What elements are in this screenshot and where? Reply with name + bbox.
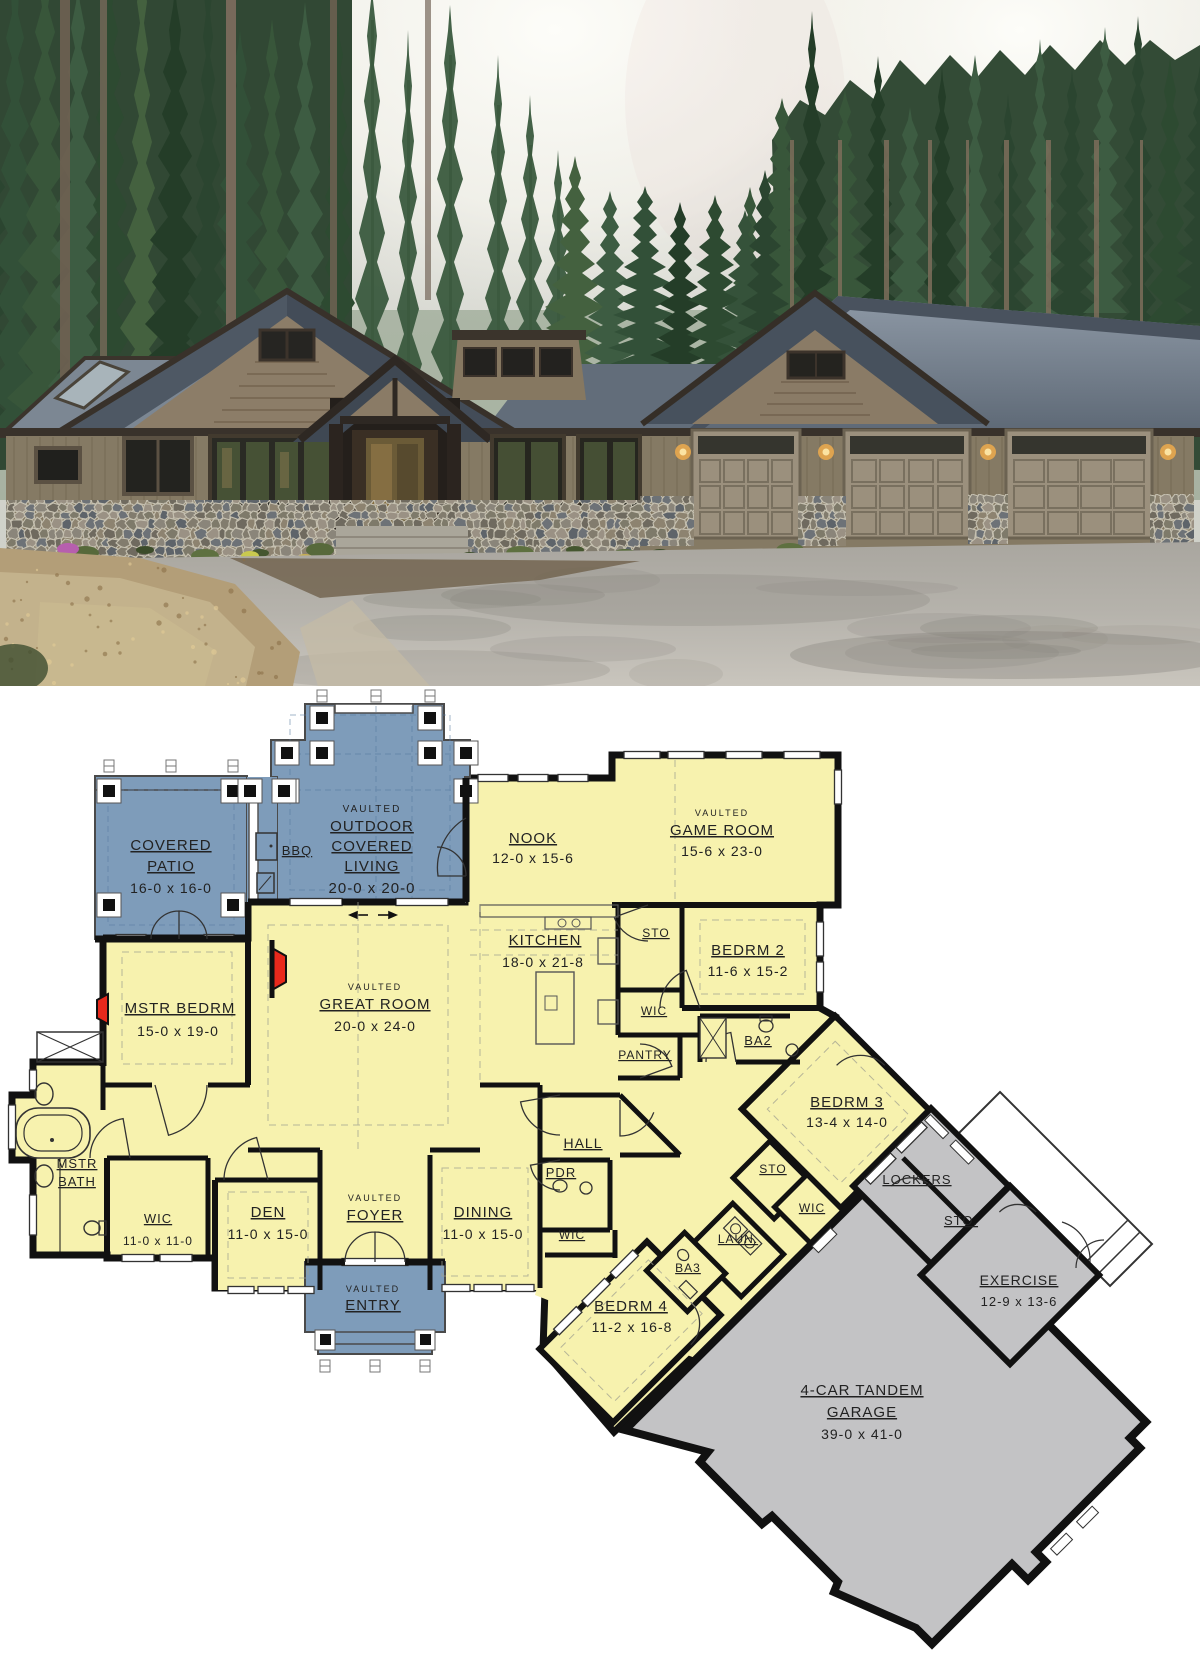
svg-text:15-6 x 23-0: 15-6 x 23-0 xyxy=(681,843,763,859)
svg-text:STO: STO xyxy=(642,926,669,940)
svg-text:COVERED: COVERED xyxy=(331,838,412,855)
svg-text:WIC: WIC xyxy=(144,1211,172,1226)
svg-text:STO.: STO. xyxy=(944,1213,978,1228)
svg-text:11-0 x 11-0: 11-0 x 11-0 xyxy=(123,1234,193,1248)
svg-text:PDR: PDR xyxy=(546,1165,576,1180)
svg-text:VAULTED: VAULTED xyxy=(348,1193,402,1203)
svg-text:VAULTED: VAULTED xyxy=(695,808,749,818)
svg-text:GREAT ROOM: GREAT ROOM xyxy=(319,996,430,1013)
svg-text:BBQ: BBQ xyxy=(282,843,312,858)
svg-text:4-CAR TANDEM: 4-CAR TANDEM xyxy=(800,1382,923,1399)
svg-text:18-0 x 21-8: 18-0 x 21-8 xyxy=(502,954,584,970)
svg-text:BEDRM 2: BEDRM 2 xyxy=(711,942,785,959)
svg-text:BEDRM 4: BEDRM 4 xyxy=(594,1298,668,1315)
svg-text:LIVING: LIVING xyxy=(344,858,399,875)
svg-text:15-0 x 19-0: 15-0 x 19-0 xyxy=(137,1023,219,1039)
svg-text:11-2 x 16-8: 11-2 x 16-8 xyxy=(592,1319,673,1335)
svg-text:BEDRM 3: BEDRM 3 xyxy=(810,1094,884,1111)
svg-text:MSTR BEDRM: MSTR BEDRM xyxy=(125,1000,236,1017)
svg-text:OUTDOOR: OUTDOOR xyxy=(330,818,414,835)
svg-text:20-0 x 24-0: 20-0 x 24-0 xyxy=(334,1018,416,1034)
svg-text:STO: STO xyxy=(759,1162,786,1176)
svg-text:MSTR: MSTR xyxy=(57,1156,98,1171)
svg-text:11-6 x 15-2: 11-6 x 15-2 xyxy=(708,963,789,979)
svg-text:12-0 x 15-6: 12-0 x 15-6 xyxy=(492,850,574,866)
svg-text:WIC: WIC xyxy=(799,1201,825,1215)
svg-text:GAME ROOM: GAME ROOM xyxy=(670,822,774,839)
svg-text:ENTRY: ENTRY xyxy=(345,1297,401,1314)
svg-text:39-0 x 41-0: 39-0 x 41-0 xyxy=(821,1426,903,1442)
svg-text:GARAGE: GARAGE xyxy=(827,1404,897,1421)
svg-text:LOCKERS: LOCKERS xyxy=(882,1172,951,1187)
svg-text:PATIO: PATIO xyxy=(147,858,195,875)
svg-text:VAULTED: VAULTED xyxy=(346,1284,400,1294)
svg-text:DEN: DEN xyxy=(251,1204,286,1221)
svg-text:EXERCISE: EXERCISE xyxy=(980,1272,1059,1288)
svg-text:HALL: HALL xyxy=(563,1135,602,1151)
svg-text:PANTRY: PANTRY xyxy=(618,1048,672,1062)
svg-text:WIC: WIC xyxy=(641,1004,667,1018)
svg-text:11-0 x 15-0: 11-0 x 15-0 xyxy=(228,1226,309,1242)
svg-text:16-0 x 16-0: 16-0 x 16-0 xyxy=(130,880,212,896)
svg-text:KITCHEN: KITCHEN xyxy=(509,932,582,949)
svg-text:20-0 x 20-0: 20-0 x 20-0 xyxy=(329,880,416,897)
svg-text:LAUN.: LAUN. xyxy=(718,1232,758,1246)
svg-text:BA2: BA2 xyxy=(744,1033,772,1048)
svg-text:VAULTED: VAULTED xyxy=(343,804,402,815)
svg-text:BATH: BATH xyxy=(58,1174,96,1189)
svg-text:DINING: DINING xyxy=(454,1204,513,1221)
svg-text:12-9 x 13-6: 12-9 x 13-6 xyxy=(981,1294,1058,1309)
svg-text:FOYER: FOYER xyxy=(347,1207,404,1224)
svg-text:NOOK: NOOK xyxy=(509,830,557,847)
svg-text:VAULTED: VAULTED xyxy=(348,982,402,992)
svg-text:WIC: WIC xyxy=(559,1228,585,1242)
svg-text:BA3: BA3 xyxy=(675,1261,701,1275)
svg-text:COVERED: COVERED xyxy=(130,837,211,854)
svg-text:13-4 x 14-0: 13-4 x 14-0 xyxy=(806,1114,888,1130)
svg-text:11-0 x 15-0: 11-0 x 15-0 xyxy=(443,1226,524,1242)
